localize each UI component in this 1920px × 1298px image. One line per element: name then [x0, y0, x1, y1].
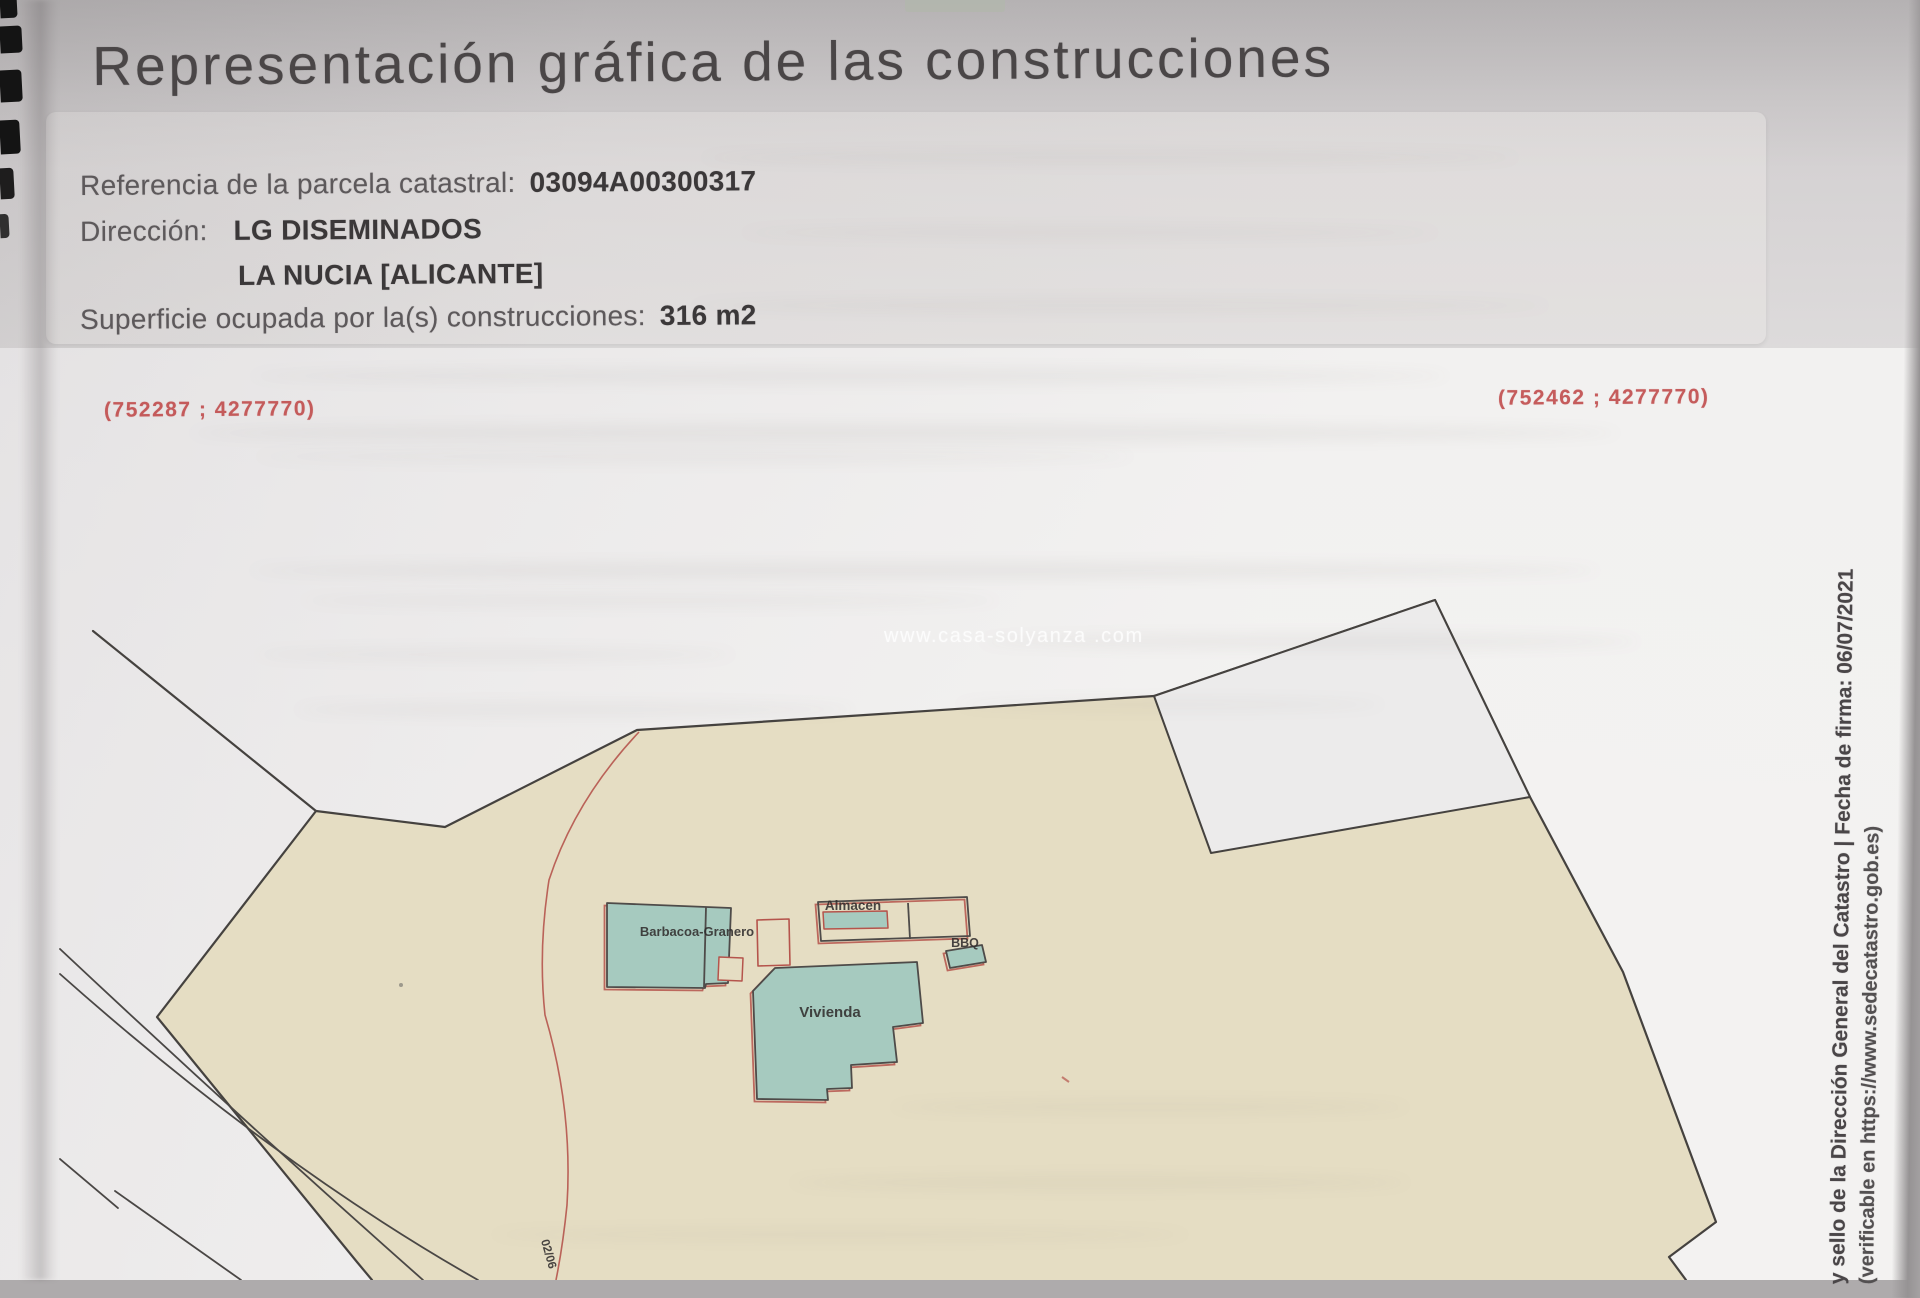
watermark: www.casa-solyanza .com: [884, 625, 1144, 648]
map-coordinate-left: (752287 ; 4277770): [104, 397, 316, 422]
building-almacen: [823, 911, 888, 929]
road-line: [60, 1159, 118, 1208]
page-fold-shadow: [20, 0, 58, 1280]
map-coordinate-right: (752462 ; 4277770): [1498, 385, 1710, 410]
binding-mark: [0, 25, 23, 53]
building-label-granero: Barbacoa-Granero: [640, 924, 754, 939]
built-area-value: 316 m2: [660, 299, 757, 331]
binding-mark: [0, 69, 23, 102]
scanned-page-photo: Barbacoa-Granero Almacen BBQ Vivienda 02…: [0, 0, 1920, 1280]
binding-mark: [0, 119, 21, 154]
binding-mark: [0, 0, 18, 18]
building-label-bbq: BBQ: [951, 936, 979, 950]
building-granero: [607, 903, 731, 988]
address-label: Dirección:: [80, 215, 208, 247]
cadastral-reference-value: 03094A00300317: [529, 165, 756, 198]
binding-mark: [0, 214, 10, 238]
road-line: [115, 1191, 241, 1280]
cadastral-reference-label: Referencia de la parcela catastral:: [80, 167, 516, 201]
building-label-vivienda: Vivienda: [799, 1004, 861, 1021]
built-area-row: Superficie ocupada por la(s) construccio…: [80, 299, 757, 336]
page-title: Representación gráfica de las construcci…: [92, 25, 1334, 98]
cadastral-reference-row: Referencia de la parcela catastral:03094…: [80, 165, 756, 202]
built-area-label: Superficie ocupada por la(s) construccio…: [80, 300, 646, 335]
address-row: Dirección:LG DISEMINADOS: [80, 213, 482, 248]
map-speck: [399, 983, 403, 987]
binding-mark: [0, 168, 15, 200]
building-label-almacen: Almacen: [825, 898, 881, 913]
address-value-line1: LG DISEMINADOS: [233, 213, 482, 246]
page-top-tab: [905, 0, 1005, 12]
building-granero-notch: [718, 957, 743, 981]
address-value-line2: LA NUCIA [ALICANTE]: [238, 258, 544, 292]
